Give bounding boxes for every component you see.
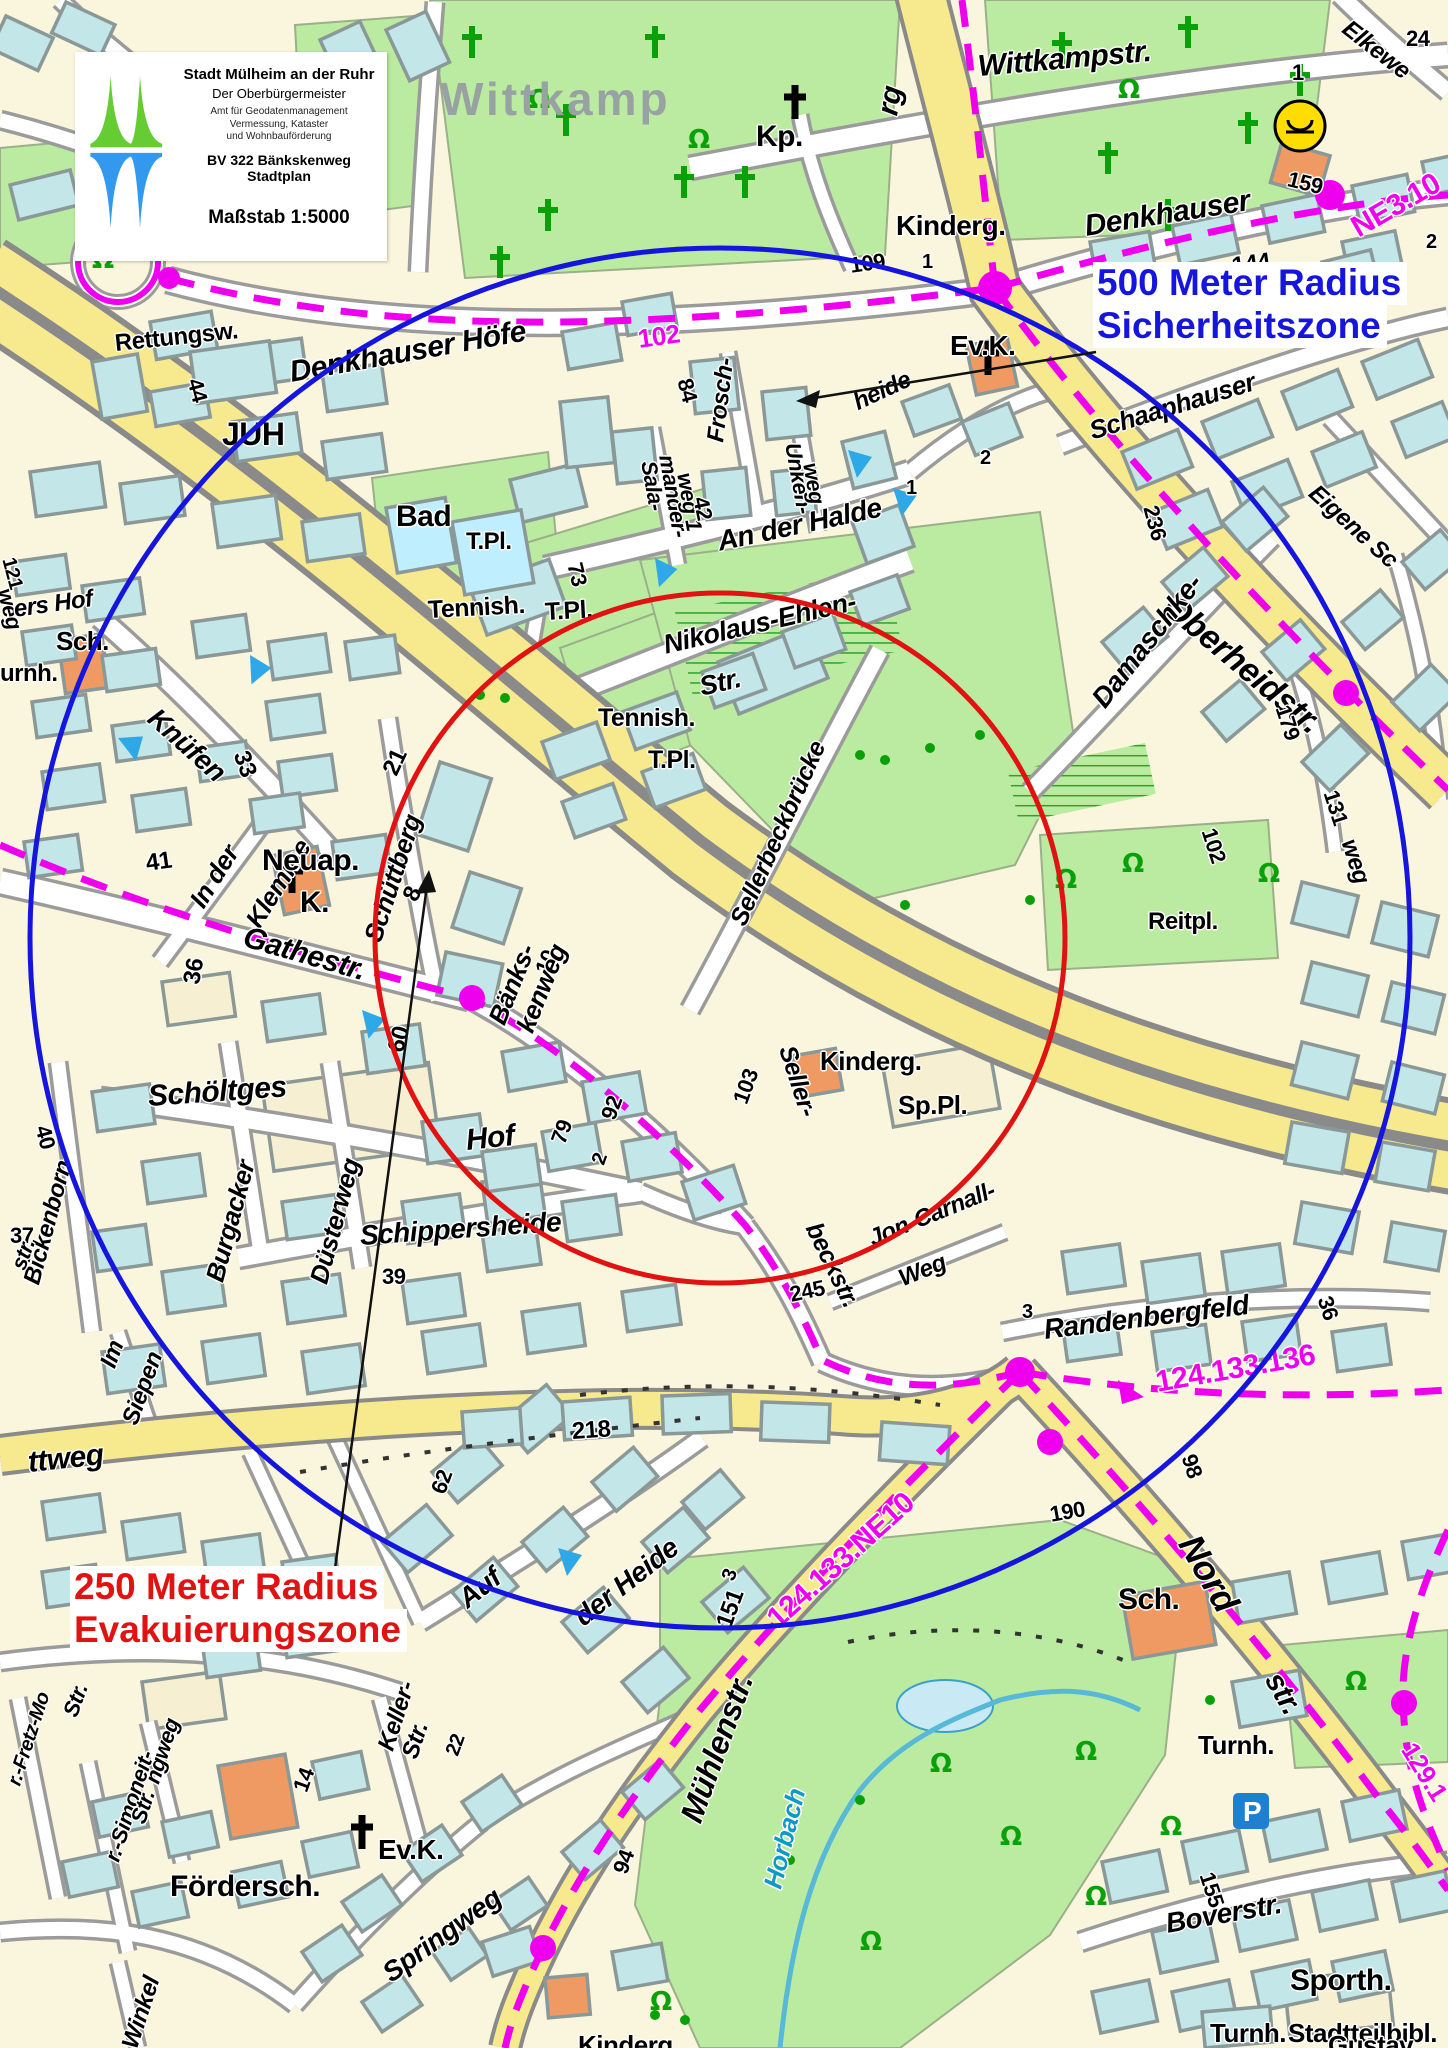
evacuation-zone-label: 250 Meter Radius Evakuierungszone xyxy=(70,1566,407,1652)
bus-stop-dot xyxy=(1391,1690,1417,1716)
evacuation-zone-line2: Evakuierungszone xyxy=(70,1609,407,1652)
svg-text:Ω: Ω xyxy=(1160,1812,1182,1842)
parking-icon: P xyxy=(1233,1793,1269,1829)
legend-box: Stadt Mülheim an der Ruhr Der Oberbürger… xyxy=(75,52,387,261)
security-zone-line2: Sicherheitszone xyxy=(1093,305,1387,348)
evacuation-zone-line1: 250 Meter Radius xyxy=(70,1566,384,1609)
legend-dept-3: und Wohnbauförderung xyxy=(179,131,379,144)
svg-text:Ω: Ω xyxy=(1000,1822,1022,1852)
city-bridge-logo xyxy=(83,62,175,247)
legend-dept-1: Amt für Geodatenmanagement xyxy=(179,106,379,119)
legend-subtitle: Der Oberbürgermeister xyxy=(179,86,379,101)
bus-stop-dot xyxy=(1315,180,1345,210)
svg-text:Ω: Ω xyxy=(1122,849,1144,879)
svg-text:Ω: Ω xyxy=(1345,1667,1367,1697)
bus-stop-dot xyxy=(1005,1357,1035,1387)
bus-stop-dot xyxy=(459,985,485,1011)
map-canvas: ΩΩΩΩΩΩΩΩΩΩΩΩΩΩΩΩP WittkamprgWittkampstr.… xyxy=(0,0,1448,2048)
svg-text:Ω: Ω xyxy=(1075,1737,1097,1767)
bus-stop-dot xyxy=(978,271,1012,305)
svg-text:Ω: Ω xyxy=(1118,75,1140,105)
legend-project-2: Stadtplan xyxy=(179,168,379,185)
svg-text:Ω: Ω xyxy=(860,1927,882,1957)
svg-text:Ω: Ω xyxy=(1085,1882,1107,1912)
post-office-icon xyxy=(1275,101,1325,151)
bus-stop-dot xyxy=(1037,1429,1063,1455)
legend-dept-2: Vermessung, Kataster xyxy=(179,119,379,132)
svg-text:P: P xyxy=(1243,1796,1262,1827)
svg-text:Ω: Ω xyxy=(1055,865,1077,895)
security-zone-line1: 500 Meter Radius xyxy=(1093,262,1407,305)
bus-stop-dot xyxy=(158,267,180,289)
svg-text:Ω: Ω xyxy=(1258,859,1280,889)
svg-text:Ω: Ω xyxy=(930,1749,952,1779)
bus-stop-dot xyxy=(530,1935,556,1961)
bus-stop-dot xyxy=(1333,680,1359,706)
security-zone-label: 500 Meter Radius Sicherheitszone xyxy=(1093,262,1407,348)
svg-text:Ω: Ω xyxy=(688,125,710,155)
legend-scale: Maßstab 1:5000 xyxy=(179,207,379,229)
legend-project-1: BV 322 Bänkskenweg xyxy=(179,152,379,169)
svg-text:Ω: Ω xyxy=(528,85,550,115)
legend-title: Stadt Mülheim an der Ruhr xyxy=(179,66,379,83)
